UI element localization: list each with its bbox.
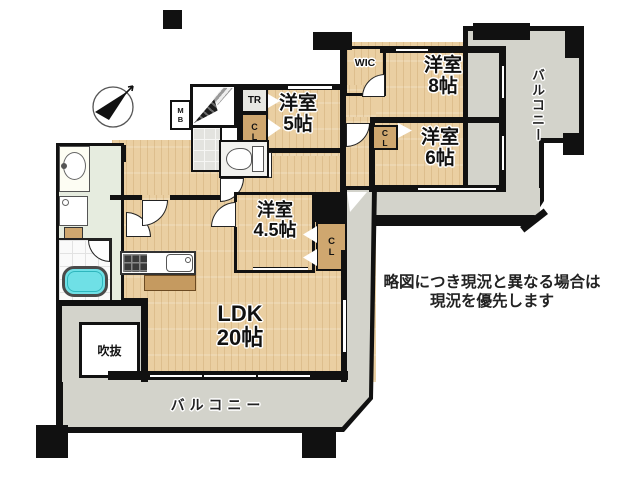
wall bbox=[366, 215, 529, 226]
balcony-label-text: バルコニー bbox=[528, 68, 547, 143]
closet-label-text: CL bbox=[380, 128, 390, 148]
room-size: 20帖 bbox=[178, 326, 302, 350]
stove-icon bbox=[123, 254, 147, 272]
window bbox=[396, 48, 428, 53]
washing-machine-icon bbox=[62, 199, 69, 206]
room-size: 8帖 bbox=[403, 77, 483, 98]
balcony-right-label: バルコニー bbox=[528, 68, 547, 152]
room-name: 洋室 bbox=[400, 128, 480, 149]
room-label-yoshitsu-8: 洋室 8帖 bbox=[403, 56, 483, 98]
disclaimer-text: 略図につき現況と異なる場合は 現況を優先します bbox=[372, 274, 612, 311]
wall bbox=[36, 427, 336, 433]
wall bbox=[141, 300, 148, 382]
wic-label: WIC bbox=[346, 58, 384, 70]
pillar bbox=[36, 425, 68, 458]
room-size: 6帖 bbox=[400, 149, 480, 170]
pillar bbox=[473, 23, 530, 40]
pillar bbox=[565, 26, 584, 58]
room-name: 洋室 bbox=[258, 94, 338, 115]
room-label-yoshitsu-6: 洋室 6帖 bbox=[400, 128, 480, 170]
room-label-ldk: LDK 20帖 bbox=[178, 302, 302, 350]
kitchen-lower-counter bbox=[144, 275, 196, 291]
window bbox=[501, 66, 506, 98]
closet-label-text: CL bbox=[326, 236, 337, 258]
pillar bbox=[312, 192, 347, 222]
pillar bbox=[163, 10, 182, 29]
disclaimer-line1: 略図につき現況と異なる場合は bbox=[372, 274, 612, 293]
balcony-bottom-label: バルコニー bbox=[158, 395, 278, 415]
room-size: 4.5帖 bbox=[230, 221, 320, 241]
room-name: LDK bbox=[178, 302, 302, 326]
void-room-label: 吹抜 bbox=[79, 322, 140, 378]
window bbox=[501, 136, 506, 170]
balcony-walkway-east bbox=[368, 188, 540, 215]
toilet-icon bbox=[252, 146, 264, 172]
window bbox=[342, 300, 347, 352]
closet-cl-6-label: CL bbox=[372, 125, 398, 150]
meter-box-text: MB bbox=[176, 106, 185, 124]
window bbox=[150, 374, 312, 378]
floor-plan-canvas: 吹抜 WIC 洋室 8帖 洋室 6帖 CL TR CL bbox=[0, 0, 640, 480]
faucet-icon bbox=[61, 163, 67, 169]
compass-icon bbox=[88, 80, 140, 132]
bathtub-icon bbox=[67, 271, 103, 292]
window bbox=[253, 267, 308, 272]
pillar bbox=[563, 133, 584, 155]
window bbox=[418, 187, 496, 191]
room-name: 洋室 bbox=[403, 56, 483, 77]
room-label-yoshitsu-5: 洋室 5帖 bbox=[258, 94, 338, 136]
genkan-tile bbox=[191, 126, 222, 172]
meter-box-label: MB bbox=[170, 100, 191, 130]
toilet-icon bbox=[226, 148, 252, 170]
window bbox=[288, 85, 332, 90]
room-size: 5帖 bbox=[258, 115, 338, 136]
faucet-icon bbox=[185, 257, 191, 263]
pillar bbox=[302, 429, 336, 458]
room-name: 洋室 bbox=[230, 201, 320, 221]
disclaimer-line2: 現況を優先します bbox=[372, 293, 612, 312]
